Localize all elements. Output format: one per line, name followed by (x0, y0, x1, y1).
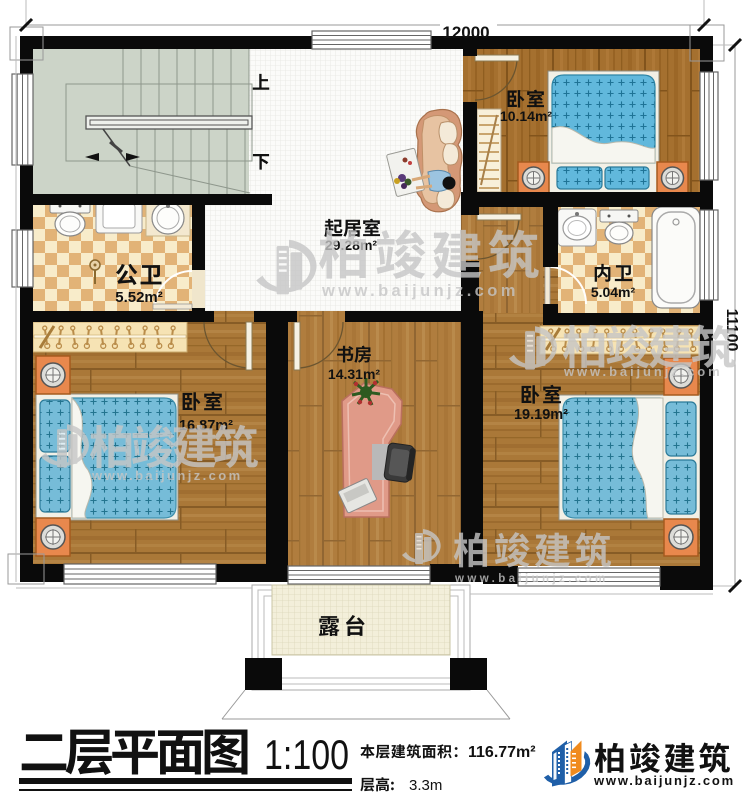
svg-text:19.19m²: 19.19m² (514, 407, 568, 423)
svg-text:5.52m²: 5.52m² (115, 289, 163, 306)
svg-text:116.77m²: 116.77m² (468, 744, 536, 761)
svg-text:12000: 12000 (442, 23, 489, 42)
svg-text:10.14m²: 10.14m² (500, 108, 552, 124)
svg-text:www.baijunjz.com: www.baijunjz.com (91, 468, 243, 483)
svg-text:www.baijunjz.com: www.baijunjz.com (321, 282, 519, 300)
svg-text:14.31m²: 14.31m² (328, 366, 380, 382)
svg-text:www.baijunjz.com: www.baijunjz.com (454, 573, 609, 585)
svg-text:1:100: 1:100 (264, 731, 349, 778)
svg-text:www.baijunjz.com: www.baijunjz.com (563, 364, 723, 379)
svg-text:5.04m²: 5.04m² (591, 284, 636, 300)
svg-text:www.baijunjz.com: www.baijunjz.com (593, 773, 735, 788)
svg-text:3.3m: 3.3m (409, 777, 442, 794)
